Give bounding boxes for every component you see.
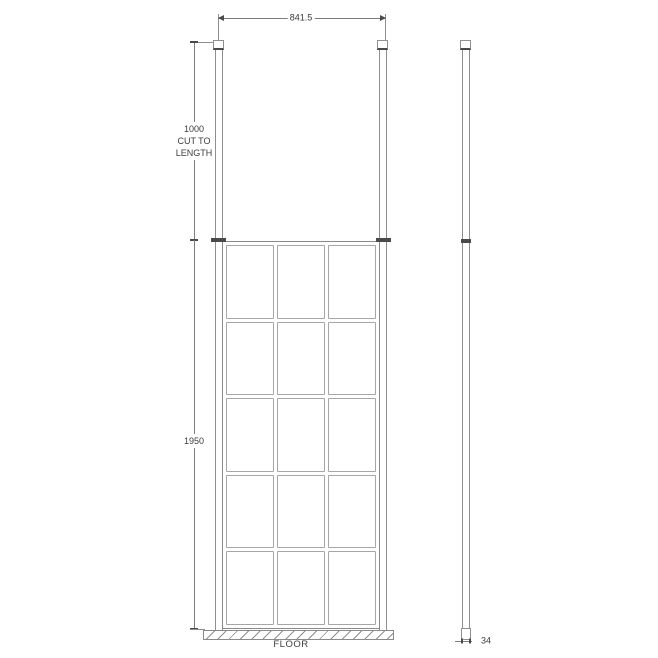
ceiling-mount-cap-left [213,40,224,50]
side-ceiling-mount-cap [460,40,471,50]
support-pole-right [379,50,387,630]
dim-drop-tick-top [190,41,198,43]
glass-pane [226,398,274,472]
panel-grid [226,245,376,625]
technical-drawing-canvas: 841.5 1000 CUT TO LENGTH 1950 [0,0,658,658]
glass-pane [226,475,274,549]
dim-drop-label-line1: 1000 [176,123,213,135]
dim-height-label: 1950 [182,434,206,448]
dim-drop-label: 1000 CUT TO LENGTH [174,122,215,160]
glass-pane [328,551,376,625]
side-profile [462,50,470,640]
dim-depth-tick-left [461,639,463,644]
panel-bracket-left [211,238,226,242]
glass-pane [328,475,376,549]
glass-pane [277,398,325,472]
dim-width-arrow-left [218,15,224,21]
glass-pane [226,322,274,396]
floor-label: FLOOR [273,640,308,650]
dim-width-label: 841.5 [288,13,315,24]
dim-drop-label-line3: LENGTH [176,147,213,159]
dim-height-label-text: 1950 [184,435,204,447]
dim-depth-tick-right [469,639,471,644]
panel-bracket-right [376,238,391,242]
glass-pane [328,322,376,396]
ceiling-mount-cap-right [377,40,388,50]
glass-pane [277,475,325,549]
glass-panel [222,241,380,629]
glass-pane [277,551,325,625]
glass-pane [226,245,274,319]
side-panel-joint [461,239,471,243]
dim-depth-label: 34 [479,636,493,647]
glass-pane [328,245,376,319]
glass-pane [226,551,274,625]
glass-pane [277,322,325,396]
glass-pane [328,398,376,472]
glass-pane [277,245,325,319]
dim-width-arrow-right [380,15,386,21]
dim-drop-label-line2: CUT TO [176,135,213,147]
